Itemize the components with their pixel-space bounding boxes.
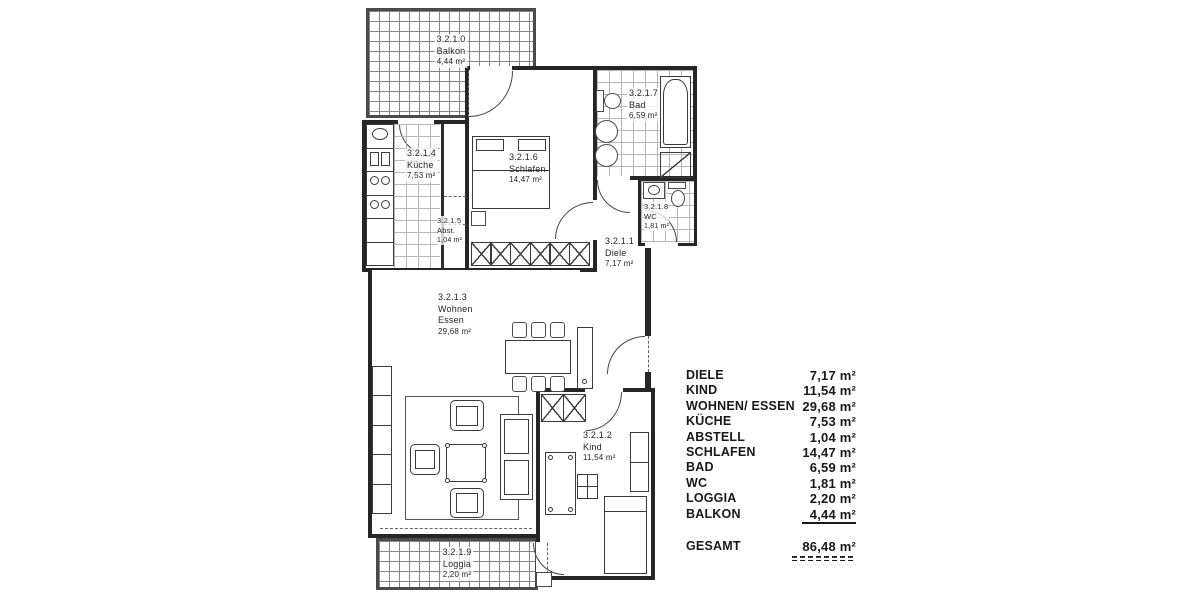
room-label-wohnen-essen: 3.2.1.3 Wohnen Essen 29,68 m² <box>438 292 473 337</box>
kitchen-counter <box>366 124 394 266</box>
hall-cabinet <box>577 327 593 389</box>
outer-wall-right-upper <box>645 248 651 336</box>
room-label-bad: 3.2.1.7 Bad 6,59 m² <box>627 88 660 122</box>
bad-toilet-tank <box>596 90 604 112</box>
armchair-left <box>410 444 440 475</box>
desk <box>545 452 576 515</box>
bad-basin-1 <box>595 120 618 143</box>
loggia-door-leaf <box>547 543 548 574</box>
wohnen-window-line <box>380 528 532 529</box>
legend-row: KÜCHE7,53 m² <box>686 414 856 429</box>
shelf-unit <box>372 366 392 514</box>
kitchen-cabinet-2 <box>367 243 393 266</box>
entry-door-arc <box>607 336 645 374</box>
bathtub <box>660 76 691 148</box>
loggia-threshold <box>536 572 552 587</box>
kitchen-basin-pair <box>367 149 393 173</box>
dining-chair <box>550 376 565 392</box>
room-label-kind: 3.2.1.2 Kind 11,54 m² <box>583 430 616 464</box>
kitchen-stove-burners-1 <box>367 172 393 196</box>
room-label-abstell: 3.2.1.5 Abst. 1,04 m² <box>437 216 462 245</box>
wc-toilet-tank <box>668 182 686 189</box>
legend-row: DIELE7,17 m² <box>686 368 856 383</box>
kitchen-cabinet-1 <box>367 219 393 243</box>
kitchen-stove-burners-2 <box>367 196 393 220</box>
kind-side-table <box>577 474 598 499</box>
room-label-kueche: 3.2.1.4 Küche 7,53 m² <box>405 148 438 182</box>
wc-toilet-bowl <box>671 190 685 207</box>
dining-chair <box>512 322 527 338</box>
floorplan-page: 3.2.1.0 Balkon 4,44 m² 3.2.1.4 Küche 7,5… <box>0 0 1200 600</box>
bad-door-arc <box>597 180 630 213</box>
legend-row: SCHLAFEN14,47 m² <box>686 445 856 460</box>
dining-chair <box>550 322 565 338</box>
bad-toilet-bowl <box>604 93 621 109</box>
room-label-diele: 3.2.1.1 Diele 7,17 m² <box>605 236 634 270</box>
abstell-shelf-line <box>444 196 466 197</box>
armchair-bottom <box>450 488 484 518</box>
area-legend: DIELE7,17 m² KIND11,54 m² WOHNEN/ ESSEN2… <box>686 368 856 561</box>
legend-row: BAD6,59 m² <box>686 460 856 475</box>
dining-chair <box>531 322 546 338</box>
room-label-wc: 3.2.1.8 WC 1,81 m² <box>644 202 669 231</box>
kitchen-sink <box>367 125 393 149</box>
armchair-top <box>450 400 484 431</box>
wc-basin <box>643 182 665 199</box>
legend-row: KIND11,54 m² <box>686 383 856 398</box>
outer-wall-right-lower <box>645 372 651 390</box>
room-label-balkon: 3.2.1.0 Balkon 4,44 m² <box>435 34 468 68</box>
dining-chair <box>531 376 546 392</box>
room-label-loggia: 3.2.1.9 Loggia 2,20 m² <box>441 547 474 581</box>
legend-row-balkon: BALKON4,44 m² <box>686 507 856 524</box>
dining-table <box>505 340 571 374</box>
legend-row: WOHNEN/ ESSEN29,68 m² <box>686 399 856 414</box>
kueche-floor-tiles <box>394 124 440 268</box>
legend-row: LOGGIA2,20 m² <box>686 491 856 506</box>
kind-bed <box>604 496 647 574</box>
coffee-table <box>446 444 486 482</box>
legend-total-underline <box>792 556 856 561</box>
schlafen-door-gap <box>593 200 598 240</box>
shower <box>660 152 691 178</box>
bad-basin-2 <box>595 144 618 167</box>
room-label-schlafen: 3.2.1.6 Schlafen 14,47 m² <box>509 152 546 186</box>
sofa <box>500 414 533 500</box>
kind-closet <box>630 432 649 492</box>
nightstand <box>471 211 486 226</box>
schlafen-balcony-door-leaf <box>468 71 469 117</box>
wc-door-gap <box>645 242 678 247</box>
legend-row: ABSTELL1,04 m² <box>686 430 856 445</box>
legend-total-row: GESAMT86,48 m² <box>686 539 856 554</box>
dining-chair <box>512 376 527 392</box>
entry-door-leaf <box>648 336 649 372</box>
schlafen-wardrobe <box>472 242 590 266</box>
kind-wardrobe <box>542 394 586 422</box>
legend-row: WC1,81 m² <box>686 476 856 491</box>
